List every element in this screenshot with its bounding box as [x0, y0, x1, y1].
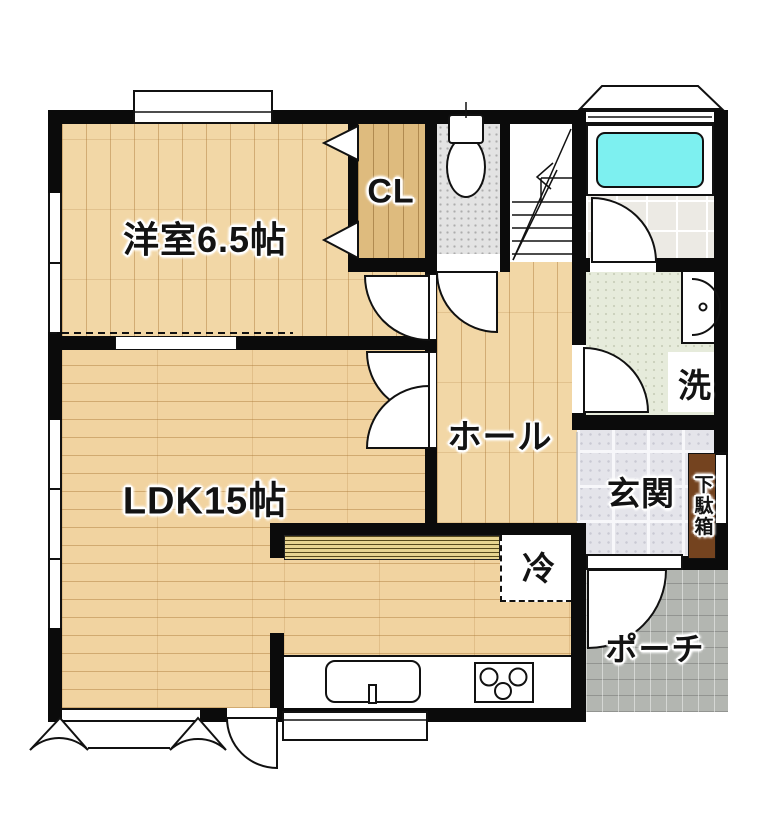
- wall-kitchen-top: [270, 523, 577, 535]
- entrance-door-leaf: [586, 554, 683, 570]
- door-gap-bathroom: [590, 258, 656, 272]
- wall-kitchen-right: [571, 523, 586, 722]
- bathtub: [596, 132, 704, 188]
- sink-faucet: [368, 684, 377, 704]
- toilet-tank: [448, 114, 484, 144]
- room-label-western: 洋室6.5帖: [123, 211, 287, 263]
- shutter-icon: [30, 718, 88, 750]
- stove: [474, 662, 534, 703]
- wall-stairs-right: [572, 124, 586, 262]
- room-label-porch: ポーチ: [605, 624, 704, 670]
- window-tick: [50, 558, 60, 560]
- bathroom-floor: [586, 196, 714, 262]
- window-ldk-bottom: [62, 708, 200, 722]
- hall-floor: [437, 262, 577, 523]
- counter: [284, 535, 500, 560]
- door-gap-washroom: [572, 345, 586, 413]
- staircase-area: [510, 124, 572, 265]
- room-label-entrance: 玄関: [607, 467, 675, 515]
- window-entrance-right: [714, 455, 728, 523]
- window-tick: [50, 488, 60, 490]
- door-gap-garden: [227, 708, 277, 722]
- room-label-closet: CL: [367, 173, 414, 212]
- window-western-top: [133, 90, 273, 124]
- bay-window: [580, 86, 722, 109]
- label-shoe-cabinet: 下駄箱: [689, 475, 716, 538]
- door-arc-garden: [227, 718, 277, 768]
- window-tick: [50, 262, 60, 264]
- wall-below-toilet-stub: [500, 258, 510, 272]
- washbasin-unit: [681, 270, 717, 344]
- wall-western-closet: [348, 124, 358, 262]
- wall-western-ldk: [48, 336, 437, 350]
- window-bath-top: [586, 110, 714, 124]
- label-fridge: 冷: [522, 542, 556, 590]
- door-gap-western: [425, 274, 437, 340]
- wall-kitchen-stub-a: [270, 523, 284, 558]
- door-gap-toilet: [437, 258, 500, 272]
- wall-top: [48, 110, 590, 124]
- wall-closet-right: [425, 124, 437, 262]
- room-label-ldk: LDK15帖: [123, 470, 287, 525]
- label-laundry: 洗: [678, 359, 712, 407]
- wall-washroom-bottom: [572, 415, 728, 430]
- window-western-left: [48, 193, 62, 332]
- wall-toilet-right: [500, 124, 510, 262]
- window-ldk-left: [48, 420, 62, 628]
- floor-plan: 洋室6.5帖 CL ホール LDK15帖 玄関 下駄箱 洗 冷 ポーチ: [0, 0, 768, 830]
- wall-below-closet: [348, 258, 437, 272]
- room-label-hall: ホール: [448, 410, 553, 459]
- toilet-bowl: [446, 136, 486, 198]
- sliding-door-western-ldk: [115, 336, 237, 350]
- door-gap-ldk: [425, 352, 437, 448]
- shutter-icon: [170, 718, 226, 750]
